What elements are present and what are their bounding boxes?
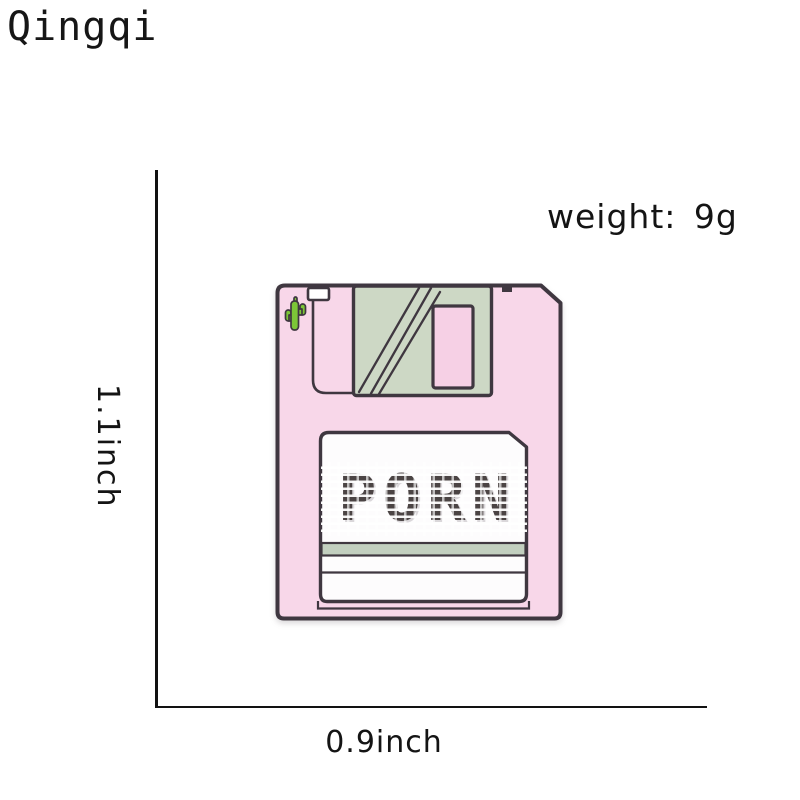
- brand-logo-text: Qingqi: [7, 4, 158, 50]
- write-protect-notch: [308, 288, 329, 300]
- width-dimension-line: [155, 706, 707, 709]
- weight-label: weight: 9g: [547, 197, 738, 236]
- shutter-window: [433, 306, 473, 388]
- width-dimension-label: 0.9inch: [298, 725, 470, 760]
- height-dimension-label: 1.1inch: [90, 384, 125, 509]
- top-edge-notch: [502, 287, 512, 293]
- label-green-stripe: [322, 543, 526, 556]
- floppy-disk-pin-illustration: [273, 283, 563, 623]
- disk-label-text: PORN: [321, 468, 527, 530]
- height-dimension-line: [155, 170, 158, 707]
